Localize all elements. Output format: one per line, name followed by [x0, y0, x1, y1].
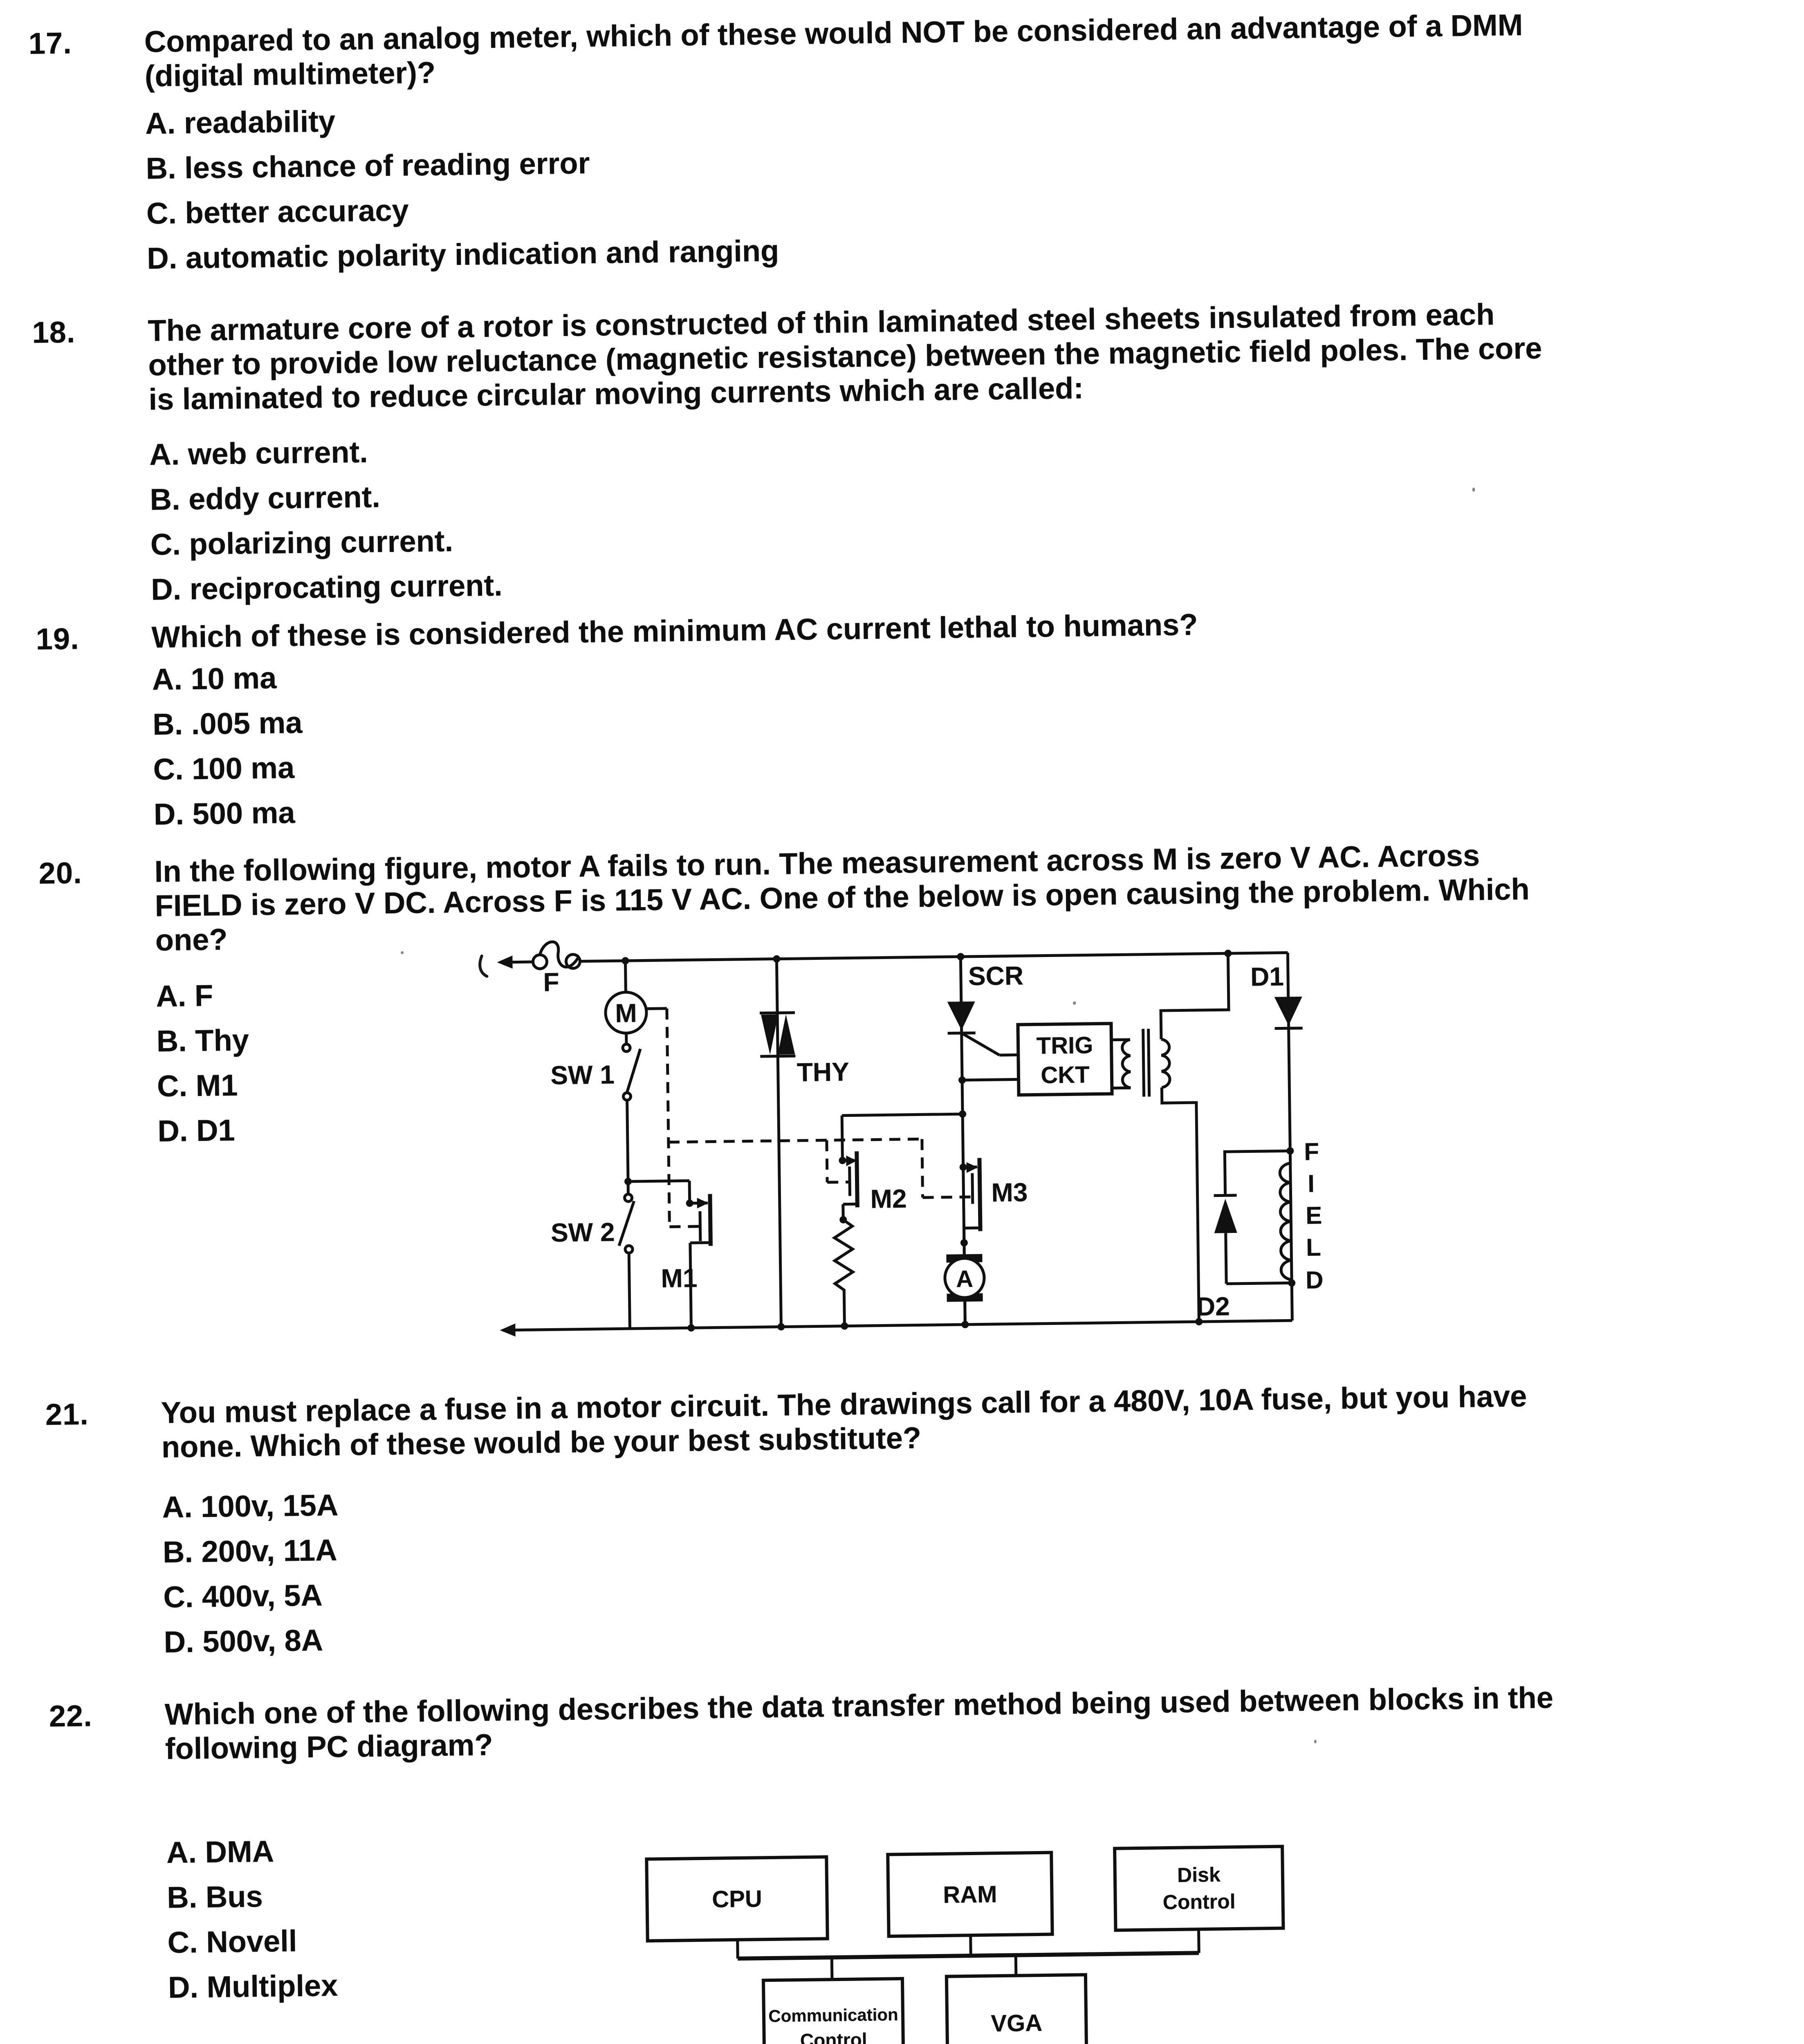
trig-ckt-box: TRIG CKT	[958, 1024, 1112, 1096]
scan-speck	[1073, 1002, 1076, 1005]
pen-speck	[471, 953, 508, 990]
question-number: 20.	[38, 855, 82, 890]
scanned-exam-page: 17. Compared to an analog meter, which o…	[0, 0, 1804, 2044]
resistor-symbol	[834, 1219, 853, 1326]
sw1-label: SW 1	[550, 1060, 615, 1090]
switch-sw1: SW 1	[550, 1033, 641, 1101]
question-number: 22.	[49, 1698, 92, 1733]
scan-speck	[1314, 1740, 1317, 1744]
diode-d2-symbol: D2	[1194, 1151, 1292, 1321]
question-21: 21. You must replace a fuse in a motor c…	[3, 1376, 1797, 1666]
svg-text:A: A	[956, 1266, 974, 1293]
svg-text:Control: Control	[800, 2029, 867, 2044]
question-17: 17. Compared to an analog meter, which o…	[0, 5, 1780, 283]
triac-thy-symbol: THY	[759, 958, 852, 1327]
d1-label: D1	[1250, 961, 1284, 991]
mosfet-m3: M3	[959, 1157, 1028, 1246]
switch-sw2: SW 2	[550, 1194, 635, 1254]
svg-text:VGA: VGA	[991, 2010, 1042, 2037]
transformer-symbol	[1110, 953, 1232, 1322]
ammeter-a-symbol: A	[945, 1243, 985, 1325]
pc-block-diagram-q22: CPU RAM Disk Control Communication Contr…	[601, 1839, 1320, 2044]
left-arrow-icon	[500, 1324, 515, 1337]
field-coil-symbol: F I E L D	[1279, 1138, 1324, 1294]
thy-label: THY	[797, 1057, 849, 1087]
ram-block: RAM	[888, 1853, 1052, 1936]
svg-text:I: I	[1308, 1170, 1315, 1197]
scan-speck	[401, 951, 404, 954]
d2-label: D2	[1196, 1291, 1230, 1321]
svg-text:CKT: CKT	[1041, 1061, 1090, 1088]
m2-label: M2	[870, 1184, 907, 1214]
svg-text:TRIG: TRIG	[1036, 1032, 1093, 1059]
top-rail	[497, 946, 1288, 969]
pen-checkmark	[1638, 2042, 1709, 2044]
question-number: 21.	[45, 1396, 89, 1432]
m1-label: M1	[661, 1263, 698, 1293]
svg-text:F: F	[1304, 1138, 1319, 1165]
m3-label: M3	[991, 1177, 1028, 1207]
motor-circuit-diagram-q20: F M SW 1 SW 2	[490, 927, 1366, 1347]
svg-text:D: D	[1306, 1266, 1324, 1294]
scr-label: SCR	[968, 961, 1024, 991]
question-19: 19. Which of these is considered the min…	[0, 600, 1787, 838]
diode-d1-symbol: D1	[1250, 953, 1306, 1321]
fuse-symbol: F	[533, 941, 581, 997]
mosfet-m2: M2	[838, 1110, 967, 1224]
question-number: 19.	[36, 621, 79, 656]
svg-text:M: M	[615, 998, 637, 1028]
svg-text:RAM: RAM	[943, 1881, 997, 1908]
bottom-rail	[500, 1314, 1292, 1337]
scan-speck	[1472, 488, 1475, 492]
cpu-block: CPU	[646, 1857, 827, 1941]
vga-block: VGA	[947, 1975, 1087, 2044]
question-number: 18.	[32, 314, 76, 350]
meter-m-symbol: M	[605, 957, 667, 1033]
fuse-label: F	[543, 967, 559, 997]
svg-text:Disk: Disk	[1177, 1863, 1221, 1887]
svg-text:E: E	[1306, 1201, 1322, 1229]
svg-text:Communication: Communication	[768, 2005, 898, 2026]
disk-control-block: Disk Control	[1115, 1847, 1283, 1930]
question-number: 17.	[28, 26, 72, 61]
svg-text:Control: Control	[1162, 1890, 1235, 1914]
sw2-label: SW 2	[551, 1217, 615, 1248]
svg-text:CPU: CPU	[712, 1885, 762, 1912]
communication-control-block: Communication Control	[763, 1979, 904, 2044]
svg-text:L: L	[1306, 1233, 1321, 1261]
question-18: 18. The armature core of a rotor is cons…	[0, 294, 1784, 614]
